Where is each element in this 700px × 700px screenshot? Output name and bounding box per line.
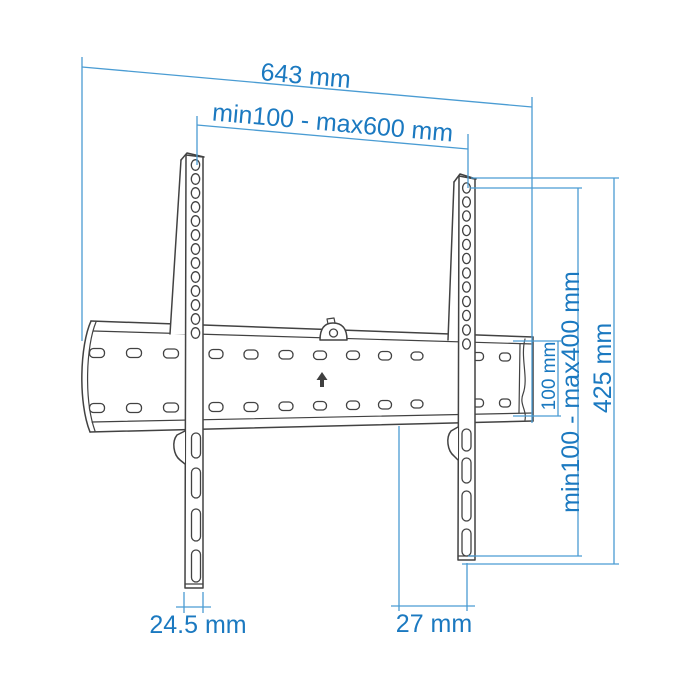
mount-dimension-drawing: 643 mm min100 - max600 mm 425 mm min100 … bbox=[0, 0, 700, 700]
hole bbox=[191, 286, 199, 297]
plate-height-label: 100 mm bbox=[539, 342, 560, 411]
plate-left-cap-outer bbox=[82, 321, 91, 432]
hole bbox=[463, 239, 471, 249]
hole bbox=[379, 401, 392, 410]
hole bbox=[191, 300, 199, 311]
slot bbox=[192, 509, 201, 541]
hole bbox=[463, 282, 471, 292]
hole bbox=[191, 160, 199, 171]
hole bbox=[127, 404, 142, 413]
slot bbox=[192, 550, 201, 582]
hole bbox=[191, 244, 199, 255]
hole bbox=[191, 272, 199, 283]
hole bbox=[379, 352, 392, 361]
hole bbox=[463, 268, 471, 278]
hole bbox=[347, 351, 360, 360]
slot bbox=[192, 433, 201, 458]
hole bbox=[463, 253, 471, 263]
right-rail-hook bbox=[448, 427, 458, 460]
hole bbox=[463, 325, 471, 335]
hole bbox=[164, 403, 179, 412]
hole bbox=[191, 328, 199, 339]
slot bbox=[462, 429, 471, 451]
left-rail-hook bbox=[174, 431, 185, 464]
slot bbox=[192, 468, 201, 498]
hole bbox=[191, 174, 199, 185]
mount-depth-label: 27 mm bbox=[396, 610, 472, 638]
vesa-width-label: min100 - max600 mm bbox=[211, 98, 454, 147]
hole bbox=[314, 351, 327, 360]
vesa-height-label: min100 - max400 mm bbox=[557, 271, 585, 513]
diagram-canvas: 643 mm min100 - max600 mm 425 mm min100 … bbox=[0, 0, 700, 700]
hole bbox=[463, 225, 471, 235]
hole bbox=[191, 202, 199, 213]
hole bbox=[191, 216, 199, 227]
hole bbox=[347, 401, 360, 410]
hole bbox=[244, 403, 258, 412]
hole bbox=[191, 230, 199, 241]
hole bbox=[463, 211, 471, 221]
hole bbox=[463, 310, 471, 320]
hole bbox=[500, 399, 511, 407]
hole bbox=[191, 314, 199, 325]
right-rail-slots bbox=[462, 429, 471, 556]
total-width-label: 643 mm bbox=[259, 58, 351, 94]
hole bbox=[279, 351, 293, 360]
hole bbox=[209, 403, 223, 412]
hole bbox=[314, 402, 327, 411]
hole bbox=[191, 258, 199, 269]
hole bbox=[463, 197, 471, 207]
rail-width-label: 24.5 mm bbox=[149, 611, 246, 639]
hole bbox=[90, 349, 105, 358]
slot bbox=[462, 491, 471, 521]
hole bbox=[463, 339, 471, 349]
slot bbox=[462, 458, 471, 483]
hole bbox=[164, 349, 179, 358]
total-height-label: 425 mm bbox=[589, 323, 617, 413]
hole bbox=[244, 350, 258, 359]
hole bbox=[463, 296, 471, 306]
hole bbox=[191, 188, 199, 199]
hole bbox=[411, 352, 423, 360]
hole bbox=[279, 402, 293, 411]
hole bbox=[463, 183, 471, 193]
hole bbox=[90, 404, 105, 413]
hole bbox=[209, 350, 223, 359]
lock-icon bbox=[320, 318, 347, 340]
dimension-rail-width bbox=[176, 592, 211, 613]
hole bbox=[127, 349, 142, 358]
slot bbox=[462, 529, 471, 556]
hole bbox=[411, 400, 423, 408]
hole bbox=[500, 353, 511, 361]
